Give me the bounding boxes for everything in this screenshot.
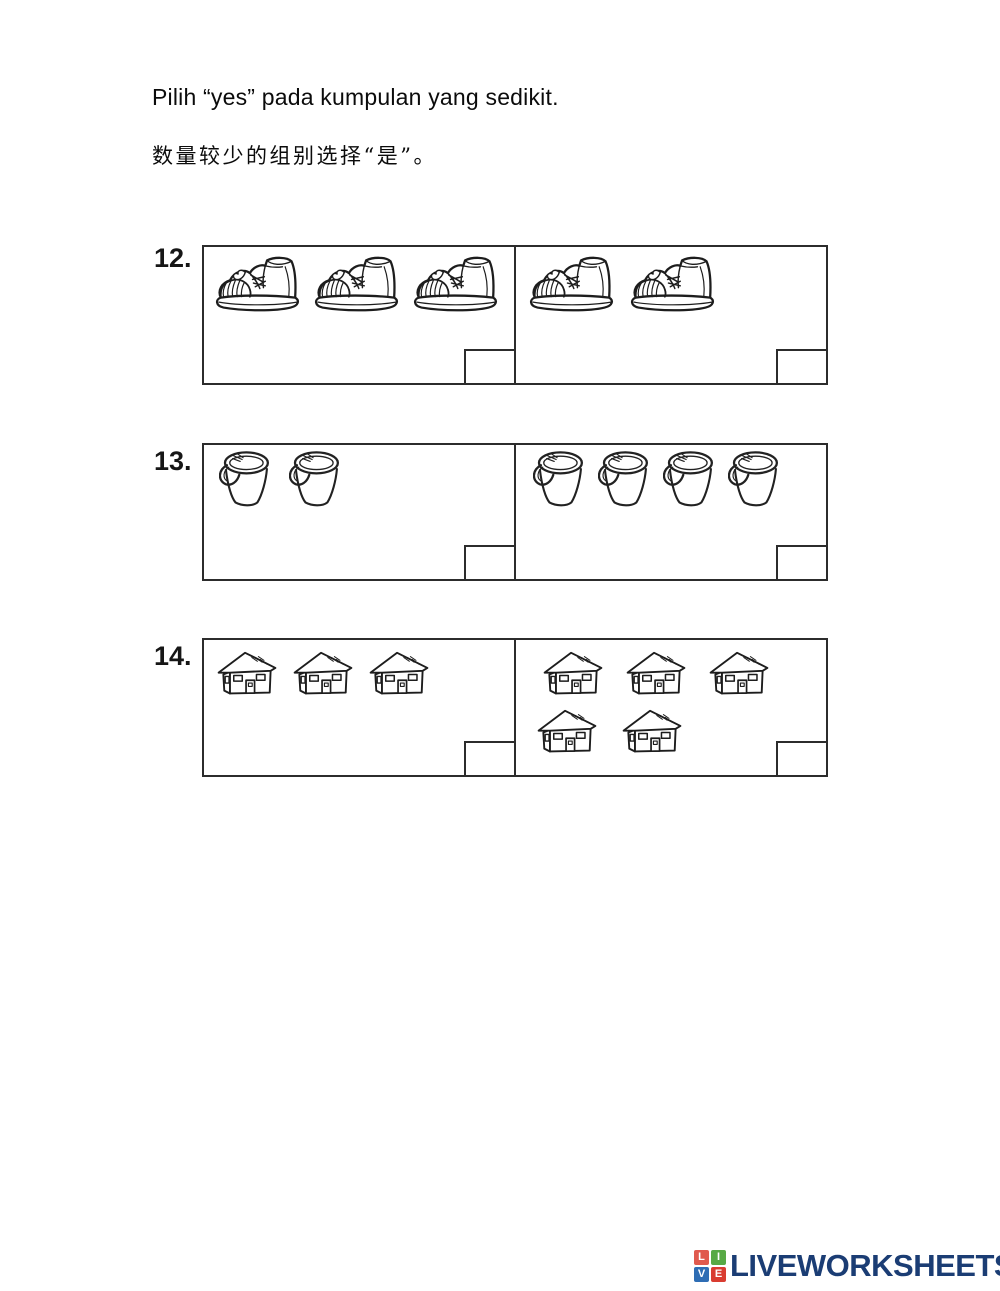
logo-letter: L xyxy=(694,1250,709,1265)
bucket-icon xyxy=(533,450,585,511)
logo-letter: E xyxy=(711,1267,726,1282)
question-number: 12. xyxy=(154,243,192,274)
boot-icon xyxy=(410,255,502,313)
house-icon xyxy=(621,707,683,760)
group-cell-left xyxy=(204,247,516,383)
answer-box[interactable] xyxy=(464,349,516,385)
question-box xyxy=(202,638,828,777)
worksheet-page: Pilih “yes” pada kumpulan yang sedikit. … xyxy=(0,0,1000,1291)
group-cell-left xyxy=(204,640,516,775)
liveworksheets-logo-icon: LIVE xyxy=(694,1250,726,1282)
house-icon xyxy=(292,649,354,702)
question-box xyxy=(202,245,828,385)
house-row xyxy=(204,640,514,702)
answer-box[interactable] xyxy=(776,349,828,385)
answer-box[interactable] xyxy=(464,741,516,777)
bucket-icon xyxy=(219,450,271,511)
instruction-line-malay: Pilih “yes” pada kumpulan yang sedikit. xyxy=(152,84,559,111)
bucket-row xyxy=(516,445,826,511)
liveworksheets-logo: LIVE LIVEWORKSHEETS xyxy=(694,1248,1000,1284)
answer-box[interactable] xyxy=(776,741,828,777)
bucket-icon xyxy=(728,450,780,511)
group-cell-left xyxy=(204,445,516,579)
question-number: 14. xyxy=(154,641,192,672)
boot-row xyxy=(516,247,826,313)
group-cell-right xyxy=(516,445,826,579)
logo-letter: V xyxy=(694,1267,709,1282)
bucket-icon xyxy=(663,450,715,511)
boot-row xyxy=(204,247,514,313)
house-icon xyxy=(708,649,770,702)
house-icon xyxy=(216,649,278,702)
answer-box[interactable] xyxy=(776,545,828,581)
group-cell-right xyxy=(516,640,826,775)
bucket-row xyxy=(204,445,514,511)
house-icon xyxy=(368,649,430,702)
house-icon xyxy=(536,707,598,760)
house-icon xyxy=(625,649,687,702)
instruction-line-chinese: 数量较少的组别选择“是”。 xyxy=(152,140,559,170)
boot-icon xyxy=(311,255,403,313)
bucket-icon xyxy=(289,450,341,511)
question-box xyxy=(202,443,828,581)
bucket-icon xyxy=(598,450,650,511)
question-number: 13. xyxy=(154,446,192,477)
house-icon xyxy=(542,649,604,702)
house-row xyxy=(516,640,826,702)
answer-box[interactable] xyxy=(464,545,516,581)
boot-icon xyxy=(627,255,719,313)
boot-icon xyxy=(212,255,304,313)
instructions: Pilih “yes” pada kumpulan yang sedikit. … xyxy=(152,84,559,170)
boot-icon xyxy=(526,255,618,313)
liveworksheets-logo-text: LIVEWORKSHEETS xyxy=(730,1248,1000,1284)
logo-letter: I xyxy=(711,1250,726,1265)
group-cell-right xyxy=(516,247,826,383)
